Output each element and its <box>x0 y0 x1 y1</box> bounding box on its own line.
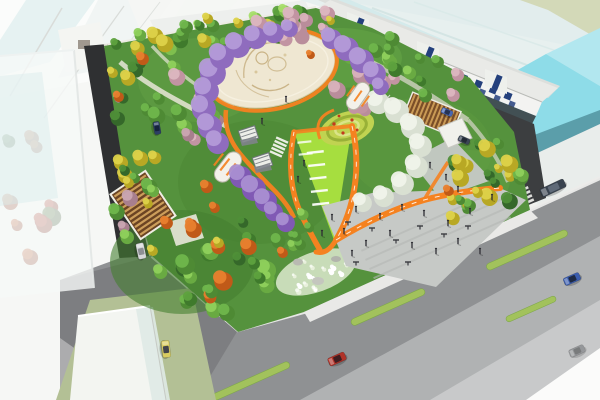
flower-dot <box>332 122 335 125</box>
flower-dot <box>338 115 341 118</box>
flower-dot <box>341 131 344 134</box>
flower-dot <box>350 118 353 121</box>
boulder <box>293 259 303 266</box>
pattern-dot <box>284 54 287 57</box>
boulder <box>331 256 341 262</box>
pattern-dot <box>255 71 258 74</box>
scene-svg <box>0 0 600 400</box>
park-masterplan-rendering <box>0 0 600 400</box>
boulder <box>312 277 324 285</box>
pattern-dot <box>269 79 271 81</box>
